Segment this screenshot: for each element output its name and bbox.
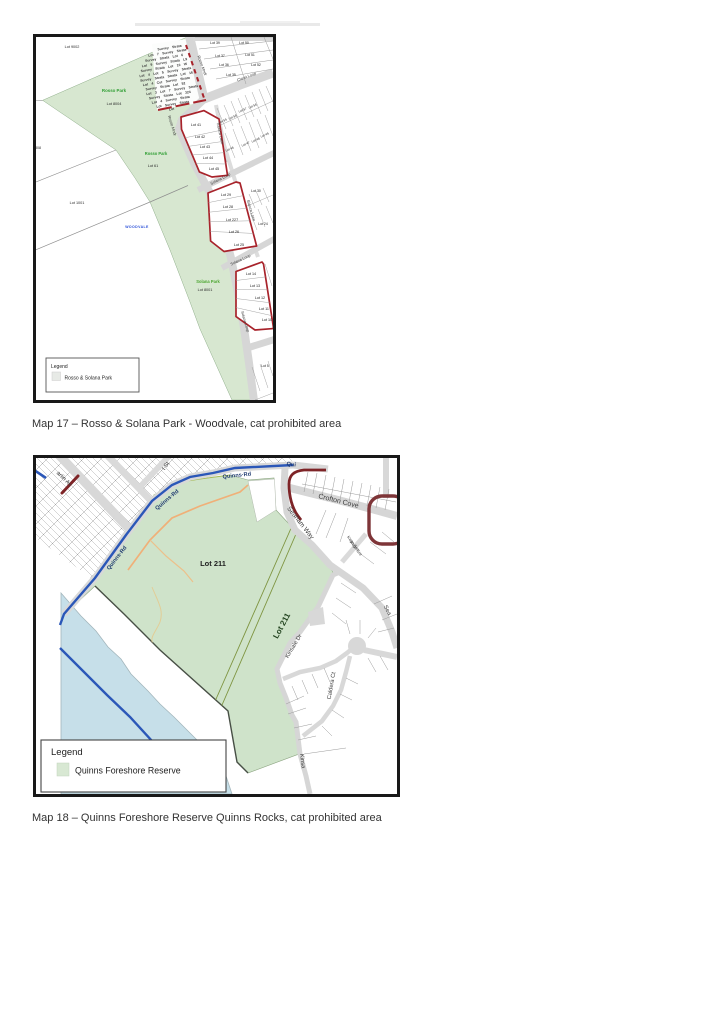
svg-text:Legend: Legend [51, 364, 68, 370]
svg-text:Lot 39: Lot 39 [210, 41, 220, 45]
svg-text:Lot 14: Lot 14 [246, 272, 256, 276]
svg-text:Lot 51: Lot 51 [245, 53, 255, 57]
svg-text:Lot 61: Lot 61 [148, 164, 159, 168]
svg-text:Lot 45: Lot 45 [209, 167, 219, 171]
svg-text:Lot 42: Lot 42 [195, 135, 205, 139]
svg-text:Legend: Legend [51, 747, 83, 758]
svg-text:Lot 1001: Lot 1001 [70, 201, 85, 205]
svg-text:WOODVALE: WOODVALE [125, 225, 149, 229]
svg-text:Rosso & Solana Park: Rosso & Solana Park [65, 376, 113, 382]
svg-text:Lot 50: Lot 50 [239, 41, 249, 45]
svg-text:Lot 36: Lot 36 [219, 63, 229, 67]
svg-text:Lot 24: Lot 24 [258, 222, 268, 226]
svg-text:Lot 11: Lot 11 [259, 307, 269, 311]
svg-text:Lot 52: Lot 52 [251, 63, 261, 67]
svg-text:Lot 8004: Lot 8004 [107, 102, 122, 106]
svg-text:Lot 8001: Lot 8001 [198, 288, 213, 292]
svg-text:Lot 13: Lot 13 [250, 284, 260, 288]
svg-text:Lot 211: Lot 211 [200, 559, 226, 568]
svg-text:Lot 28: Lot 28 [223, 205, 233, 209]
svg-text:Quinns Foreshore Reserve: Quinns Foreshore Reserve [75, 766, 181, 776]
svg-text:Lot 26: Lot 26 [229, 230, 239, 234]
svg-text:Lot 9002: Lot 9002 [65, 45, 80, 49]
svg-text:Lot 30: Lot 30 [251, 189, 261, 193]
svg-text:Lot 29: Lot 29 [221, 193, 231, 197]
svg-text:Rosso Park: Rosso Park [102, 88, 127, 93]
svg-text:Lot 227: Lot 227 [226, 218, 238, 222]
svg-text:Lot 43: Lot 43 [200, 145, 210, 149]
svg-text:Lot 10: Lot 10 [262, 318, 272, 322]
svg-text:Lot 808: Lot 808 [36, 146, 41, 150]
svg-text:Lot 5: Lot 5 [261, 364, 269, 368]
svg-text:Lot 12: Lot 12 [255, 296, 265, 300]
svg-text:Solana Park: Solana Park [196, 279, 220, 284]
svg-text:Lot 35: Lot 35 [226, 73, 236, 77]
svg-text:Lot 25: Lot 25 [234, 243, 244, 247]
svg-text:Lot 37: Lot 37 [215, 54, 225, 58]
svg-text:Lot 41: Lot 41 [191, 123, 201, 127]
svg-text:Rosso Park: Rosso Park [145, 151, 168, 156]
svg-text:Lot 44: Lot 44 [203, 156, 213, 160]
